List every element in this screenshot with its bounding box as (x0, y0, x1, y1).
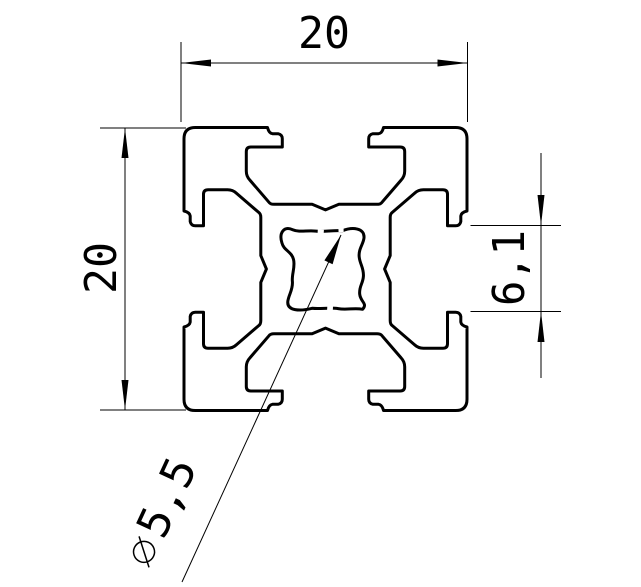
bore-dimension-label: 5,5 (127, 450, 208, 546)
bore-dimension-label-group: 5,5 (114, 450, 207, 573)
bore-leader: 5,5 (114, 235, 341, 582)
arrowhead (122, 380, 129, 410)
arrowhead (122, 128, 129, 158)
center-bore-outline (281, 229, 365, 310)
dimension-slot-opening: 6,1 (471, 153, 562, 378)
cad-drawing-sheet: 5,5 20 20 6,1 (0, 0, 641, 587)
arrowhead (538, 195, 545, 226)
cad-drawing-canvas: 5,5 20 20 6,1 (0, 0, 641, 587)
arrowhead (538, 312, 545, 343)
dimension-label-slot-opening: 6,1 (484, 230, 535, 306)
diameter-symbol (129, 536, 159, 567)
arrowhead (438, 60, 468, 67)
dimension-label-top-width: 20 (298, 8, 350, 59)
dimension-label-left-height: 20 (76, 242, 127, 294)
dimension-left-height: 20 (76, 128, 186, 410)
leader-arrowhead (324, 235, 341, 264)
arrowhead (181, 60, 211, 67)
dimension-top-width: 20 (181, 8, 468, 122)
center-bore-gaps (318, 230, 344, 308)
